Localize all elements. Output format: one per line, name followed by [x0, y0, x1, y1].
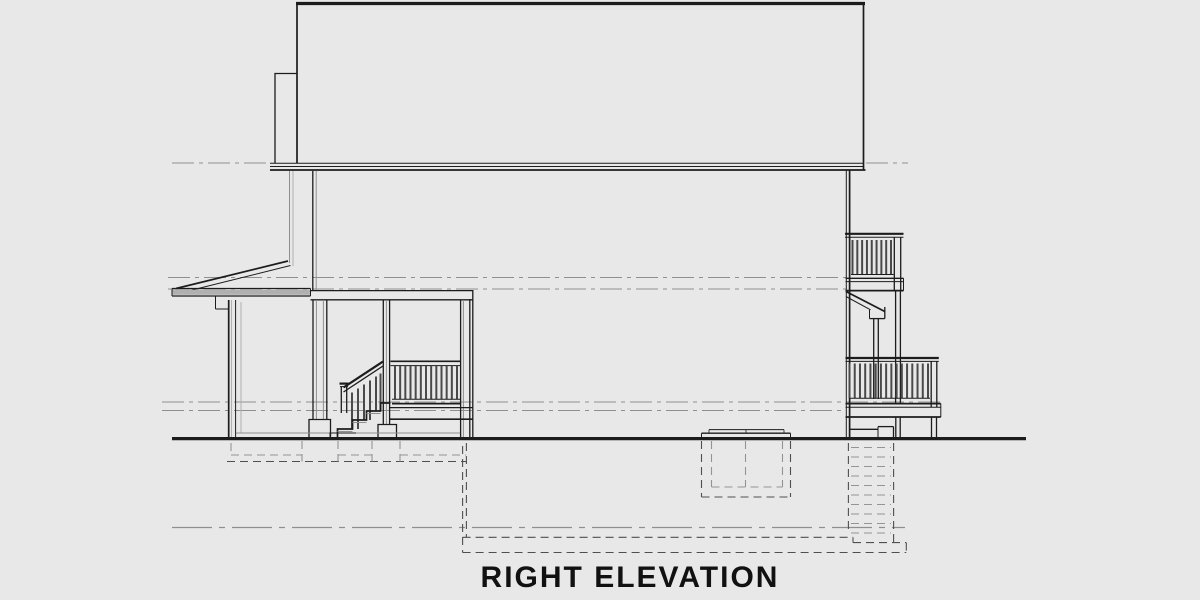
foundation-dashed [227, 441, 906, 553]
stair-slab [330, 433, 356, 438]
porch-posts [229, 290, 473, 438]
main-roof [270, 3, 866, 170]
basement-stair-treads [851, 448, 891, 534]
drawing-title: RIGHT ELEVATION [481, 561, 780, 595]
stairwell-curb [849, 427, 894, 438]
reference-lines [162, 163, 940, 528]
elevation-sheet: RIGHT ELEVATION [0, 0, 1200, 600]
post-base [309, 420, 331, 438]
walls [290, 170, 850, 438]
porch-stairs [330, 362, 391, 438]
porch-roof [172, 261, 473, 309]
balcony-balusters [853, 240, 892, 274]
window-well-dashed [702, 441, 791, 497]
elevation-drawing [0, 0, 1200, 600]
left-porch [172, 261, 473, 438]
footing-band [463, 443, 907, 553]
deck-balusters [850, 364, 929, 399]
post-base [378, 425, 397, 438]
roof-offset [275, 74, 297, 164]
left-footings [227, 441, 467, 462]
lower-deck [846, 358, 941, 438]
porch-balusters [395, 366, 457, 399]
